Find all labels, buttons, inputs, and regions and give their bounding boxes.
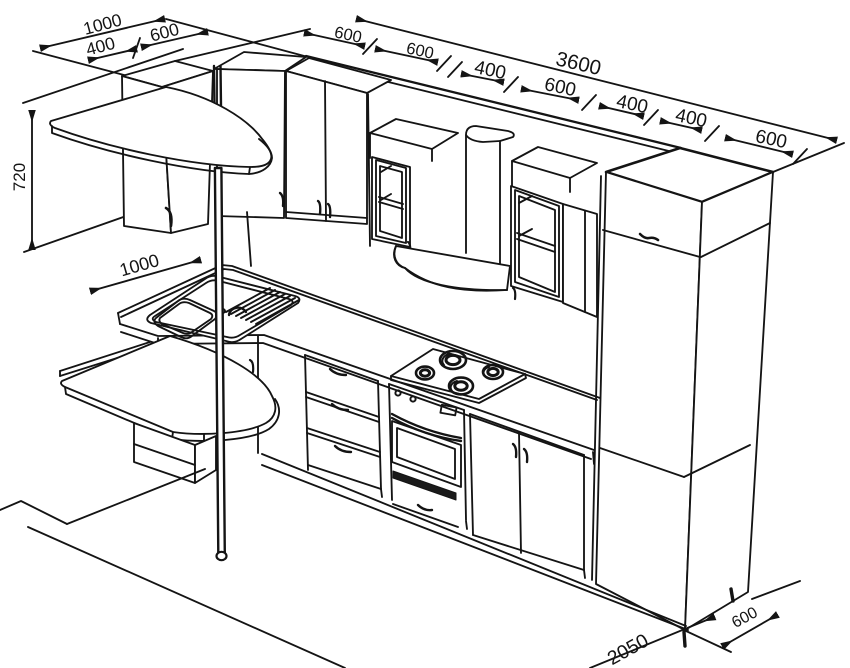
svg-text:400: 400: [673, 105, 708, 132]
svg-text:600: 600: [333, 23, 364, 46]
svg-text:720: 720: [10, 163, 29, 191]
svg-text:600: 600: [542, 74, 577, 101]
svg-text:1000: 1000: [117, 250, 161, 280]
svg-text:600: 600: [753, 126, 788, 153]
svg-text:600: 600: [405, 39, 436, 62]
svg-text:3600: 3600: [554, 47, 604, 80]
svg-text:400: 400: [614, 91, 649, 118]
svg-text:400: 400: [472, 57, 507, 84]
svg-text:600: 600: [148, 19, 182, 46]
svg-text:2050: 2050: [604, 630, 653, 668]
